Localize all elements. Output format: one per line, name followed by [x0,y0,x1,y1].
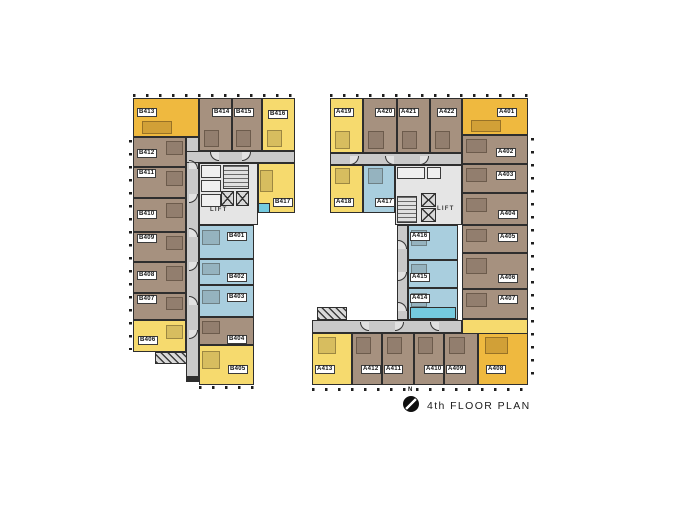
lift-label: LIFT [437,206,454,212]
lift-label: LIFT [210,207,227,213]
unit-label-B410: B410 [137,210,157,219]
unit-A410 [414,333,444,385]
unit-label-A401: A401 [497,108,517,117]
unit-label-A421: A421 [399,108,419,117]
unit-label-B409: B409 [137,234,157,243]
unit-A419 [330,98,363,153]
north-compass-icon [403,396,419,412]
unit-label-A404: A404 [498,210,518,219]
unit-label-A416: A416 [410,232,430,241]
unit-B416 [262,98,295,151]
unit-A413 [312,333,352,385]
unit-label-A422: A422 [437,108,457,117]
unit-A405 [462,225,528,253]
unit-label-B415: B415 [234,108,254,117]
balcony-ticks [330,94,528,97]
balcony-ticks [531,138,534,383]
unit-A421 [397,98,430,153]
unit-label-B403: B403 [227,293,247,302]
unit-label-B401: B401 [227,232,247,241]
unit-label-B416: B416 [268,110,288,119]
unit-label-B404: B404 [227,335,247,344]
core-room [201,180,221,192]
unit-A422 [430,98,462,153]
unit-A412 [352,333,382,385]
hatched-structure [155,352,187,364]
unit-A408 [478,333,528,385]
unit-label-B413: B413 [137,108,157,117]
unit-A407 [462,289,528,319]
lift-shaft [421,193,436,207]
unit-label-A414: A414 [410,294,430,303]
unit-label-A408: A408 [486,365,506,374]
unit-A406 [462,253,528,289]
unit-label-B405: B405 [228,365,248,374]
hatched-structure [317,307,347,320]
corridor-b-wing [186,151,295,163]
unit-label-A403: A403 [496,171,516,180]
unit-label-B402: B402 [227,273,247,282]
floor-plan-title: 4th FLOOR PLAN [427,400,531,412]
core-room [201,194,221,207]
unit-label-A411: A411 [384,365,403,374]
accent-block [258,203,270,213]
core-room [397,167,425,179]
unit-A404 [462,193,528,225]
unit-label-B412: B412 [137,149,157,158]
unit-A403 [462,164,528,193]
unit-label-B411: B411 [137,169,156,178]
stairwell [223,165,249,189]
unit-label-A413: A413 [315,365,335,374]
core-room [427,167,441,179]
unit-label-A407: A407 [498,295,518,304]
unit-label-B406: B406 [138,336,158,345]
unit-B415 [232,98,262,151]
corridor-b-wing [186,137,199,382]
unit-label-A418: A418 [334,198,354,207]
balcony-ticks [312,388,528,391]
unit-label-B417: B417 [273,198,293,207]
stairwell [397,196,417,223]
unit-A416 [408,225,458,260]
balcony-ticks [129,140,132,350]
unit-fill [462,319,528,334]
balcony-ticks [133,94,295,97]
unit-B413 [133,98,199,137]
unit-B414 [199,98,232,151]
unit-label-B407: B407 [137,295,157,304]
unit-label-A412: A412 [361,365,381,374]
lift-shaft [221,191,234,206]
corridor-end-cap [186,376,199,382]
unit-label-A417: A417 [375,198,395,207]
unit-label-B408: B408 [137,271,157,280]
floor-plan: N 4th FLOOR PLAN LIFTB413B414B415B416B41… [0,0,690,514]
unit-label-A410: A410 [424,365,444,374]
lift-shaft [236,191,249,206]
unit-label-A405: A405 [498,233,518,242]
unit-label-A409: A409 [446,365,466,374]
unit-A411 [382,333,414,385]
accent-block [410,307,456,319]
unit-A402 [462,135,528,164]
balcony-ticks [199,386,254,389]
unit-label-A415: A415 [410,273,430,282]
unit-label-A419: A419 [334,108,354,117]
unit-A401 [462,98,528,135]
unit-label-A420: A420 [375,108,395,117]
corridor-a-wing [312,320,462,333]
unit-B401 [199,225,254,259]
lift-shaft [421,208,436,222]
unit-A409 [444,333,478,385]
unit-label-A402: A402 [496,148,516,157]
unit-label-A406: A406 [498,274,518,283]
unit-A420 [363,98,397,153]
core-room [201,165,221,178]
unit-label-B414: B414 [212,108,232,117]
